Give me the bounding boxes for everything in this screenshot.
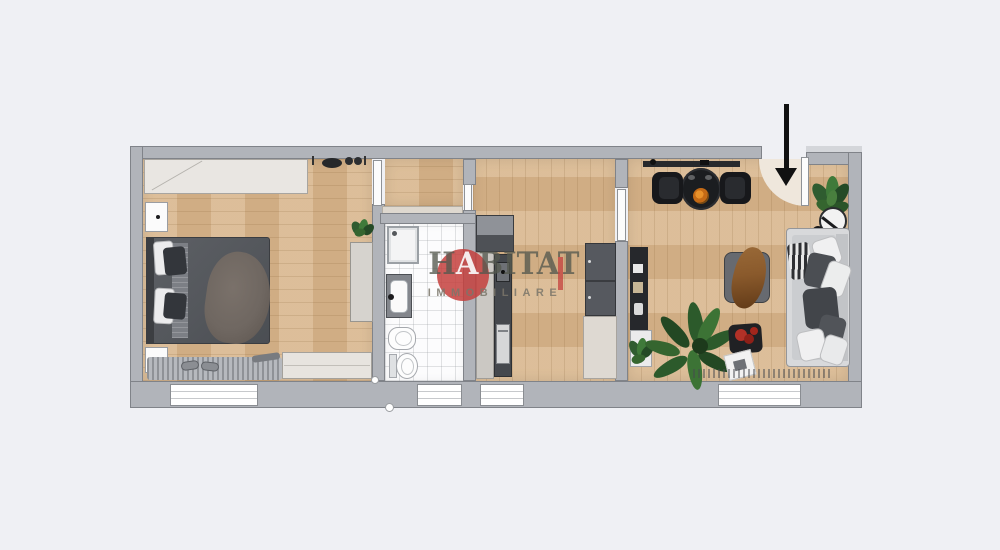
tv-unit-decor xyxy=(633,282,643,293)
watermark-red-tick xyxy=(558,257,563,290)
bedroom-floor-item xyxy=(345,157,353,165)
tv-unit-decor xyxy=(634,303,643,315)
console-decor xyxy=(650,159,656,165)
watermark-brand-part1: H xyxy=(428,246,456,282)
dining-chair-seat xyxy=(725,177,745,199)
top-wall-left xyxy=(130,146,762,159)
oven-handle xyxy=(498,330,508,332)
shower-drain xyxy=(392,231,397,236)
bathroom-top-wall xyxy=(380,213,476,224)
entrance-arrow-line xyxy=(784,104,789,170)
bedroom-wardrobe xyxy=(144,159,308,194)
bedroom-side-cabinet xyxy=(350,242,373,322)
floor-plan-image: HABITAT IMMOBILIARE xyxy=(0,0,1000,550)
watermark-brand-part2: A xyxy=(456,246,479,282)
hallway-floor xyxy=(385,159,463,206)
wall-dot xyxy=(371,376,379,384)
dining-chair-seat xyxy=(659,177,679,199)
hallway-kitchen-wall-upper xyxy=(463,159,476,185)
bedroom-floor-item xyxy=(364,156,366,165)
bedroom-floor-item xyxy=(354,157,362,165)
table-plate xyxy=(705,175,712,180)
bedroom-floor-item xyxy=(312,156,314,165)
bed-accent-pillow xyxy=(163,246,188,276)
watermark-brand-part3: BITAT xyxy=(478,246,579,282)
dresser-seam xyxy=(284,365,370,366)
tv-unit-decor xyxy=(633,264,643,273)
left-wall xyxy=(130,146,143,408)
red-flowers xyxy=(750,327,758,335)
bedroom-window xyxy=(170,384,258,406)
toilet-seat xyxy=(401,358,414,375)
bidet-basin xyxy=(395,331,412,346)
console-decor xyxy=(700,160,709,165)
living-rug-fringe xyxy=(693,369,833,378)
kitchen-tall-unit-divider xyxy=(586,280,615,282)
watermark-subtitle: IMMOBILIARE xyxy=(420,287,570,299)
bedroom-door xyxy=(373,160,382,206)
living-room-door xyxy=(617,189,626,241)
bathroom-window xyxy=(417,384,462,406)
nightstand-top-knob xyxy=(156,215,160,219)
bed-accent-pillow xyxy=(163,292,187,320)
watermark-brand: HABITAT xyxy=(428,249,561,280)
slipper xyxy=(201,361,220,372)
right-wall xyxy=(848,152,862,408)
wall-dot xyxy=(385,403,394,412)
unit-handle xyxy=(588,260,591,263)
entrance-door xyxy=(801,157,809,206)
kitchen-beige-cabinet xyxy=(583,316,617,379)
bedroom-floor-bag xyxy=(322,158,342,168)
unit-handle xyxy=(588,296,591,299)
fruit-bowl xyxy=(693,188,709,204)
entrance-arrow-head xyxy=(775,168,797,186)
red-flowers xyxy=(744,334,754,344)
bedroom-hallway-wall xyxy=(372,204,385,381)
living-room-window xyxy=(718,384,801,406)
kitchen-door xyxy=(464,184,472,211)
plant-center xyxy=(692,338,708,354)
wall-console-strip xyxy=(643,161,740,167)
table-plate xyxy=(688,175,695,180)
kitchen-window xyxy=(480,384,524,406)
kitchen-living-wall-upper xyxy=(615,159,628,188)
sink-faucet xyxy=(388,294,394,300)
